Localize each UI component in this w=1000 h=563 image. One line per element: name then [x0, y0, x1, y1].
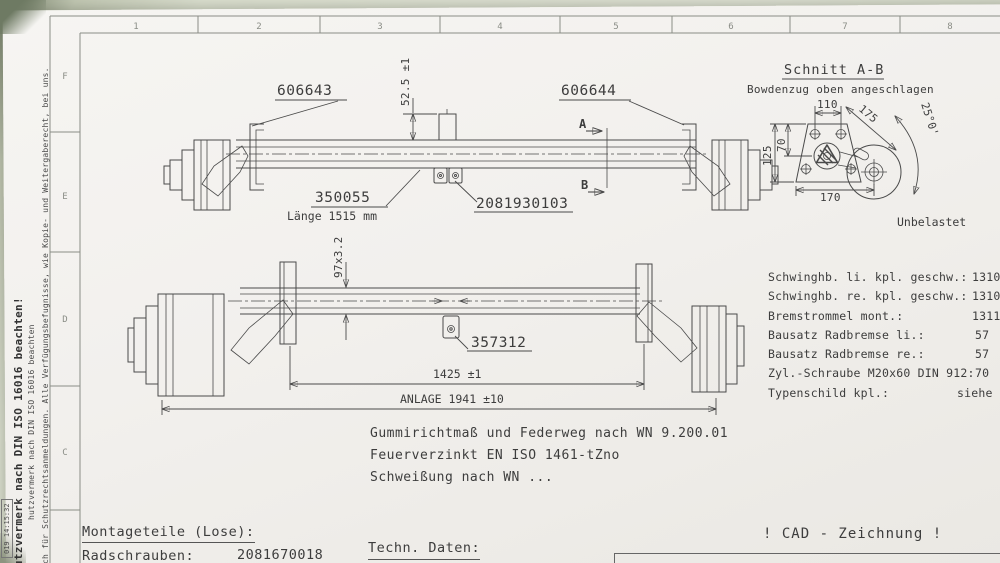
brake-drum-left: [128, 294, 224, 396]
photographed-drawing: 1 2 3 4 5 6 7 8 F E D C: [0, 0, 1000, 563]
part-value: 1310: [972, 289, 1000, 303]
part-value: 57: [975, 328, 989, 342]
svg-text:606644: 606644: [561, 83, 616, 99]
montageteile-heading: Montageteile (Lose):: [82, 524, 255, 543]
dim-170: 170: [796, 184, 874, 204]
parts-row: Schwinghb. li. kpl. geschw.:1310: [768, 270, 1000, 289]
parts-row: Zyl.-Schraube M20x60 DIN 912:70: [768, 366, 1000, 385]
title-block-tick: [614, 553, 615, 563]
axle-bottom-view: 97x3.2 357312 1425 ±1: [128, 236, 744, 415]
parts-row: Bausatz Radbremse re.:57: [768, 347, 1000, 366]
part-label: Bremstrommel mont.:: [768, 309, 903, 323]
svg-text:350055: 350055: [315, 190, 370, 206]
grid-row-f: F: [62, 72, 67, 82]
part-label: Zyl.-Schraube M20x60 DIN 912:: [768, 366, 975, 380]
drawing-content: 1 2 3 4 5 6 7 8 F E D C: [0, 0, 1000, 563]
dim-70: 70: [775, 124, 812, 156]
grid-column-8: 8: [947, 22, 952, 32]
svg-text:357312: 357312: [471, 335, 526, 351]
cad-zeichnung-note: ! CAD - Zeichnung !: [763, 526, 942, 542]
bolt-holes: [800, 128, 857, 175]
section-mark-b: B: [581, 178, 588, 192]
section-subtitle: Bowdenzug oben angeschlagen: [747, 83, 934, 96]
dim-angle: 25°0': [895, 101, 941, 194]
grid-column-1: 1: [133, 22, 138, 32]
section-caption: Unbelastet: [897, 215, 966, 229]
part-label: Schwinghb. li. kpl. geschw.:: [768, 270, 967, 284]
cam-disc: [838, 145, 901, 199]
label-606644: 606644: [559, 83, 684, 125]
section-mark-a: A: [579, 117, 587, 131]
section-title: Schnitt A-B: [784, 62, 884, 78]
part-value: 57: [975, 347, 989, 361]
grid-column-5: 5: [613, 22, 618, 32]
grid-column-7: 7: [842, 22, 847, 32]
flange-left: [280, 262, 296, 344]
grid-column-6: 6: [728, 22, 733, 32]
swing-arm-right: [637, 302, 697, 362]
note-line: Schweißung nach WN ...: [370, 467, 728, 489]
label-2081930103: 2081930103: [455, 181, 573, 212]
cable-bracket: [432, 301, 470, 338]
section-view: Schnitt A-B Bowdenzug oben angeschlagen: [747, 62, 966, 229]
brake-drum-left: [164, 140, 230, 210]
note-line: Gummirichtmaß und Federweg nach WN 9.200…: [370, 423, 728, 445]
label-laenge: Länge 1515 mm: [287, 209, 377, 223]
grid-column-3: 3: [377, 22, 382, 32]
dim-97x32-label: 97x3.2: [332, 236, 345, 278]
dim-52-5: 52.5 ±1: [399, 58, 437, 140]
dim-175: 175: [846, 102, 896, 150]
dim-52-5-label: 52.5 ±1: [399, 58, 412, 106]
protection-notice-long: auch für Schutzrechtsanmeldungen. Alle V…: [41, 67, 50, 563]
axle-top-view: 52.5 ±1 606643 606644: [164, 58, 778, 223]
note-line: Feuerverzinkt EN ISO 1461-tZno: [370, 445, 728, 467]
part-value: siehe: [957, 386, 993, 400]
parts-row: Schwinghb. re. kpl. geschw.:1310: [768, 289, 1000, 308]
parts-list: Schwinghb. li. kpl. geschw.:1310 Schwing…: [768, 270, 1000, 405]
part-label: Typenschild kpl.:: [768, 386, 889, 400]
techn-daten-heading: Techn. Daten:: [368, 540, 480, 560]
torsion-hub: [814, 143, 840, 169]
swing-arm-left: [202, 146, 248, 196]
protection-notice-small: hutzvermerk nach DIN ISO 16016 beachten: [27, 324, 36, 520]
part-value: 1310: [972, 270, 1000, 284]
svg-text:606643: 606643: [277, 83, 332, 99]
label-606643: 606643: [252, 83, 347, 126]
shock-bracket-left: [250, 124, 264, 190]
label-350055: 350055 Länge 1515 mm: [287, 170, 420, 223]
part-label: Bausatz Radbremse li.:: [768, 328, 925, 342]
svg-text:2081930103: 2081930103: [476, 196, 568, 212]
dim-1425-label: 1425 ±1: [433, 367, 482, 381]
label-357312: 357312: [455, 335, 532, 351]
buffer-pad: [439, 114, 456, 140]
section-marks: A B: [579, 117, 607, 192]
dim-170-label: 170: [820, 191, 841, 204]
dim-125-label: 125: [761, 145, 774, 166]
part-value: 70: [975, 366, 989, 380]
dim-angle-label: 25°0': [918, 101, 941, 138]
cable-bracket: [434, 168, 462, 183]
part-label: Schwinghb. re. kpl. geschw.:: [768, 289, 967, 303]
dim-110-label: 110: [817, 98, 838, 111]
parts-row: Bausatz Radbremse li.:57: [768, 328, 1000, 347]
dim-70-label: 70: [775, 138, 788, 152]
brake-drum-right: [692, 306, 744, 392]
grid-row-e: E: [62, 192, 67, 202]
grid-column-4: 4: [497, 22, 502, 32]
grid-row-c: C: [62, 448, 67, 458]
radschrauben-label: Radschrauben:: [82, 548, 194, 563]
radschrauben-value: 2081670018: [237, 547, 323, 563]
notes-block: Gummirichtmaß und Federweg nach WN 9.200…: [370, 423, 728, 489]
parts-row: Bremstrommel mont.:1311: [768, 309, 1000, 328]
protection-notice-bold: hutzvermerk nach DIN ISO 16016 beachten!: [12, 297, 25, 563]
dim-125: 125: [761, 124, 806, 182]
dim-anlage-label: ANLAGE 1941 ±10: [400, 392, 504, 406]
grid-row-d: D: [62, 315, 67, 325]
dim-175-label: 175: [856, 102, 880, 125]
grid-column-2: 2: [256, 22, 261, 32]
swing-arm-right: [684, 146, 730, 196]
part-label: Bausatz Radbremse re.:: [768, 347, 925, 361]
parts-row: Typenschild kpl.:siehe: [768, 386, 1000, 405]
title-block-line: [614, 553, 1000, 554]
dim-anlage: ANLAGE 1941 ±10: [162, 392, 716, 415]
part-value: 1311: [972, 309, 1000, 323]
